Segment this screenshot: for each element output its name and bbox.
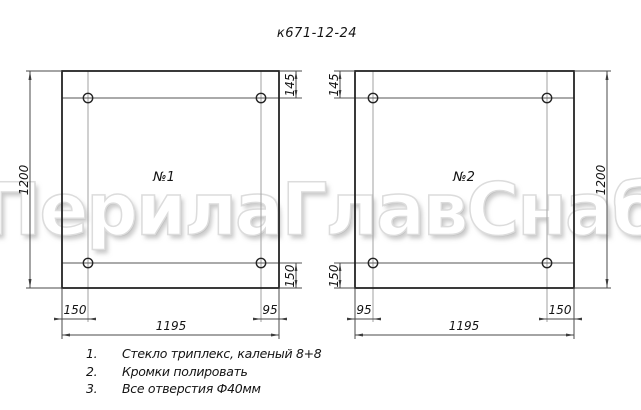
dim-top-hole-offset: 145 [283, 74, 297, 97]
dim-arrow [539, 318, 547, 321]
dim-right-hole-offset: 95 [262, 303, 277, 317]
panel-2: №2 [334, 71, 574, 322]
panel-label: №1 [152, 170, 175, 185]
dim-height: 1200 [17, 164, 31, 195]
dim-arrow [606, 71, 609, 80]
panel-1: №1 [62, 71, 302, 322]
panel-1-dimensions: 1200 145 150 150 95 [17, 71, 302, 339]
dim-arrow [606, 279, 609, 288]
dim-arrow [88, 318, 96, 321]
technical-drawing: к671-12-24 №1 1200 [0, 0, 641, 410]
panel-label: №2 [452, 170, 475, 185]
note-number: 1. [86, 346, 97, 361]
dim-width: 1195 [156, 319, 187, 333]
dim-bottom-hole-offset: 150 [327, 264, 341, 287]
dim-arrow [347, 318, 355, 321]
drawing-title: к671-12-24 [277, 26, 357, 41]
dim-arrow [253, 318, 261, 321]
dim-arrow [279, 318, 287, 321]
dim-arrow [29, 71, 32, 80]
dim-height: 1200 [594, 164, 608, 195]
notes-list: 1. Стекло триплекс, каленый 8+8 2. Кромк… [86, 346, 322, 396]
dim-arrow [271, 334, 279, 337]
dim-arrow [566, 334, 574, 337]
dim-width: 1195 [449, 319, 480, 333]
dim-bottom-hole-offset: 150 [283, 264, 297, 287]
dim-right-hole-offset: 150 [549, 303, 572, 317]
panel-2-dimensions: 145 150 1200 95 150 [327, 71, 611, 339]
dim-arrow [54, 318, 62, 321]
note-text: Стекло триплекс, каленый 8+8 [122, 346, 322, 361]
dim-arrow [574, 318, 582, 321]
dim-arrow [355, 334, 363, 337]
dim-top-hole-offset: 145 [327, 74, 341, 97]
dim-arrow [373, 318, 381, 321]
note-text: Кромки полировать [122, 364, 248, 379]
dim-left-hole-offset: 150 [64, 303, 87, 317]
dim-left-hole-offset: 95 [356, 303, 371, 317]
note-text: Все отверстия Ф40мм [122, 381, 261, 396]
dim-arrow [62, 334, 70, 337]
note-number: 2. [86, 364, 97, 379]
dim-arrow [29, 279, 32, 288]
note-number: 3. [86, 381, 97, 396]
drawing-canvas: ПерилаГлавСнаб к671-12-24 №1 [0, 0, 641, 410]
